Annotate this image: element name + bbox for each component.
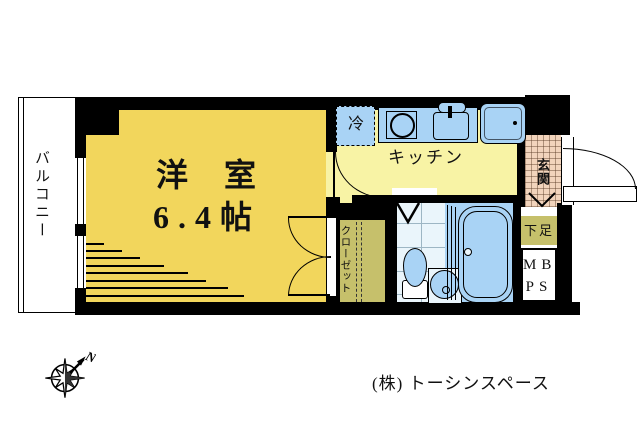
- compass-north-label: N: [83, 348, 96, 366]
- shoe-box: 下足: [521, 216, 557, 245]
- tub-surround-line-2: [451, 206, 452, 300]
- step-down-arrow-icon: [527, 191, 557, 208]
- shoe-box-label: 下足: [524, 223, 554, 238]
- balcony-label: バルコニー: [33, 150, 48, 280]
- tile-grid-h2: [397, 247, 445, 248]
- floor-mark-line: [86, 295, 244, 297]
- floor-mark-line: [86, 257, 140, 259]
- floor-mark-line: [86, 265, 164, 267]
- meter-box-mb-label: MB: [523, 254, 555, 276]
- closet-door-dash-2: [361, 222, 362, 302]
- bathtub-drain: [464, 248, 472, 256]
- wall-bottom: [75, 302, 580, 315]
- tub-surround-line-3: [455, 207, 456, 300]
- meter-box-ps-label: PS: [523, 276, 555, 298]
- tub-surround-line-1: [447, 205, 448, 300]
- floor-mark-line: [86, 280, 206, 282]
- wall-corner-top-right: [525, 95, 570, 135]
- washing-machine-drain: [513, 121, 517, 125]
- balcony-edge-bottom: [18, 312, 75, 313]
- floor-mark-line: [86, 272, 188, 274]
- kitchen-label: キッチン: [388, 143, 498, 168]
- floor-mark-line: [86, 287, 228, 289]
- room-name-label: 洋 室: [88, 150, 326, 196]
- meter-box: MB PS: [521, 248, 557, 302]
- balcony-rail-inner: [23, 97, 24, 313]
- closet-door-dash-1: [356, 222, 357, 302]
- balcony-edge-top: [18, 97, 75, 98]
- balcony-rail-outer: [18, 97, 19, 313]
- floor-plan: バルコニー 洋 室 6.4帖 冷 キッチン: [0, 0, 640, 441]
- faucet-spout: [448, 106, 452, 118]
- window-line-inner: [83, 156, 84, 290]
- faucet-icon: [438, 102, 466, 113]
- folding-door-icon: [395, 202, 423, 225]
- wash-basin-drain: [442, 286, 450, 294]
- wall-bath-right: [513, 203, 521, 302]
- wall-right-lower: [557, 203, 572, 315]
- stove-burner-icon: [390, 113, 415, 138]
- refrigerator-label: 冷: [336, 107, 376, 143]
- floor-mark-line: [86, 250, 122, 252]
- closet-label: クローゼット: [339, 225, 350, 303]
- floor-mark-line: [86, 243, 104, 245]
- compass-rose-icon: N: [36, 346, 96, 406]
- credit-text: (株) トーシンスペース: [372, 369, 622, 394]
- window-line-outer: [77, 156, 78, 290]
- entrance-door-arc: [563, 148, 636, 189]
- wall-left-upper: [75, 97, 86, 158]
